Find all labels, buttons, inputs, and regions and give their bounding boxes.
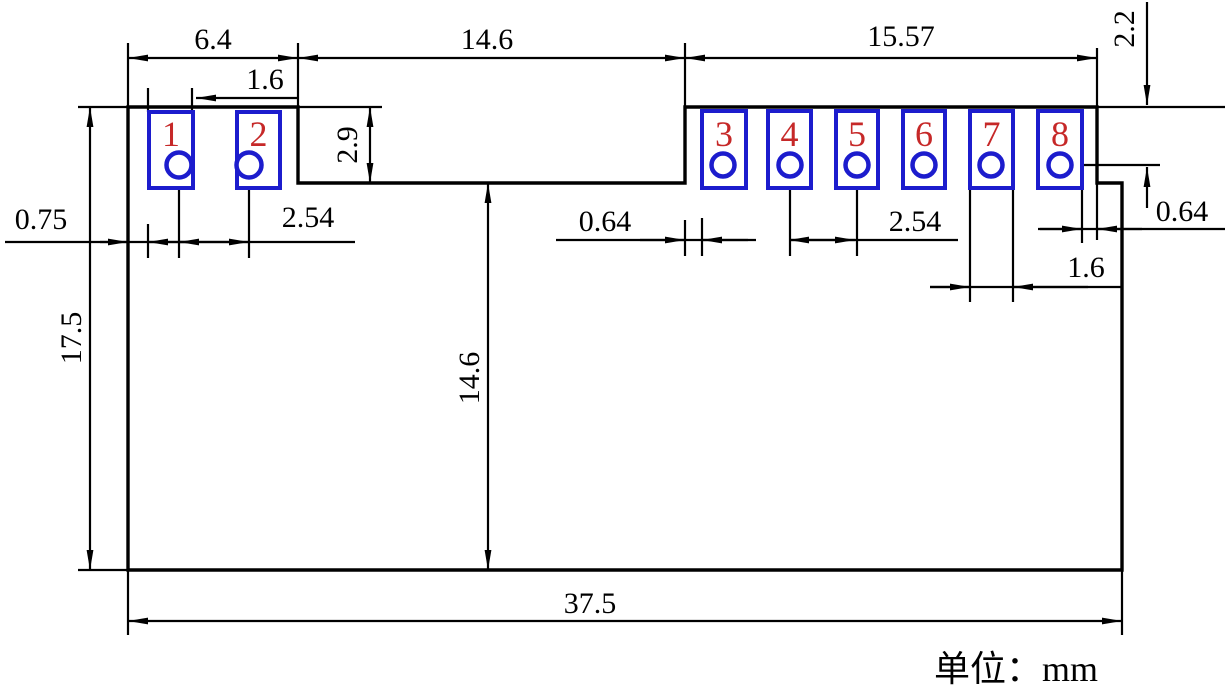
dim-width-total: 37.5 — [564, 587, 617, 620]
dim-edge-to-pad-left: 0.75 — [15, 203, 68, 236]
pad-1-hole — [167, 153, 192, 178]
pad-2-hole — [237, 153, 262, 178]
dim-pad-left-width: 1.6 — [246, 63, 284, 96]
dim-edge-to-pad-right: 0.64 — [579, 205, 632, 238]
dim-block-left-height: 2.9 — [331, 126, 364, 164]
pad-6-hole — [913, 154, 936, 177]
dim-pitch-right: 2.54 — [889, 205, 942, 238]
pad-2-number: 2 — [250, 114, 268, 154]
pad-3-hole — [712, 154, 735, 177]
pad-5-number: 5 — [848, 114, 866, 154]
pad-7-hole — [980, 154, 1003, 177]
dim-height-total: 17.5 — [55, 312, 88, 365]
dim-block-right-width: 15.57 — [867, 20, 935, 53]
unit-note: 单位：mm — [934, 649, 1098, 689]
pad-3-number: 3 — [715, 114, 733, 154]
pad-7-number: 7 — [983, 114, 1001, 154]
linework — [5, 2, 1225, 635]
dim-notch-width: 14.6 — [461, 23, 514, 56]
dimension-labels: 6.4 14.6 15.57 1.6 0.75 2.54 0.64 2.54 0… — [15, 10, 1209, 620]
drawing-canvas: 1 2 3 4 5 6 7 8 6.4 14.6 15.57 1.6 0.75 … — [0, 0, 1225, 692]
dim-pad-right-width: 1.6 — [1067, 251, 1105, 284]
pad-1-number: 1 — [162, 114, 180, 154]
pad-5-hole — [846, 154, 869, 177]
dim-hole-offset-right: 0.64 — [1156, 195, 1209, 228]
pads — [149, 111, 1082, 188]
pad-4-hole — [779, 154, 802, 177]
dim-block-left-width: 6.4 — [194, 23, 232, 56]
dim-notch-depth: 14.6 — [453, 352, 486, 405]
footprint-dimension-drawing: 1 2 3 4 5 6 7 8 6.4 14.6 15.57 1.6 0.75 … — [0, 0, 1225, 692]
pad-8-hole — [1049, 154, 1072, 177]
pad-6-number: 6 — [915, 114, 933, 154]
pad-4-number: 4 — [781, 114, 799, 154]
dim-pitch-left: 2.54 — [282, 201, 335, 234]
pad-8-number: 8 — [1051, 114, 1069, 154]
dim-hole-offset-top-right: 2.2 — [1108, 10, 1141, 48]
